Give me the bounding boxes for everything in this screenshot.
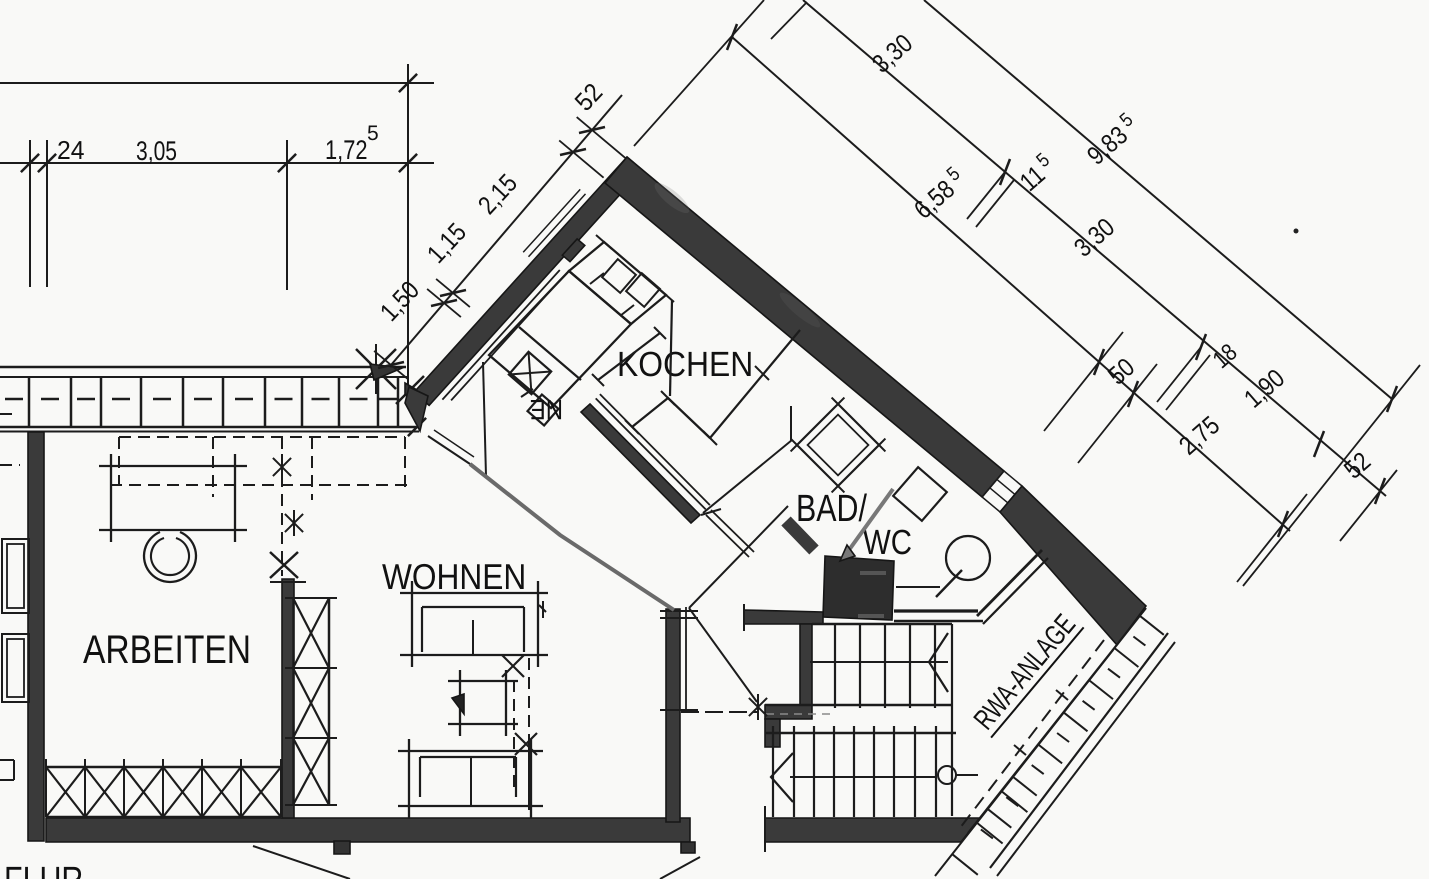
svg-text:NE: NE [530,394,563,425]
svg-text:WC: WC [863,523,912,562]
svg-text:ARBEITEN: ARBEITEN [83,628,251,672]
svg-text:5: 5 [367,122,379,145]
svg-text:1,72: 1,72 [325,135,368,165]
svg-text:3,05: 3,05 [136,136,177,166]
svg-text:FLUR: FLUR [4,860,83,879]
svg-text:WOHNEN: WOHNEN [382,556,526,597]
svg-text:BAD/: BAD/ [796,488,867,530]
svg-text:24: 24 [57,135,84,165]
